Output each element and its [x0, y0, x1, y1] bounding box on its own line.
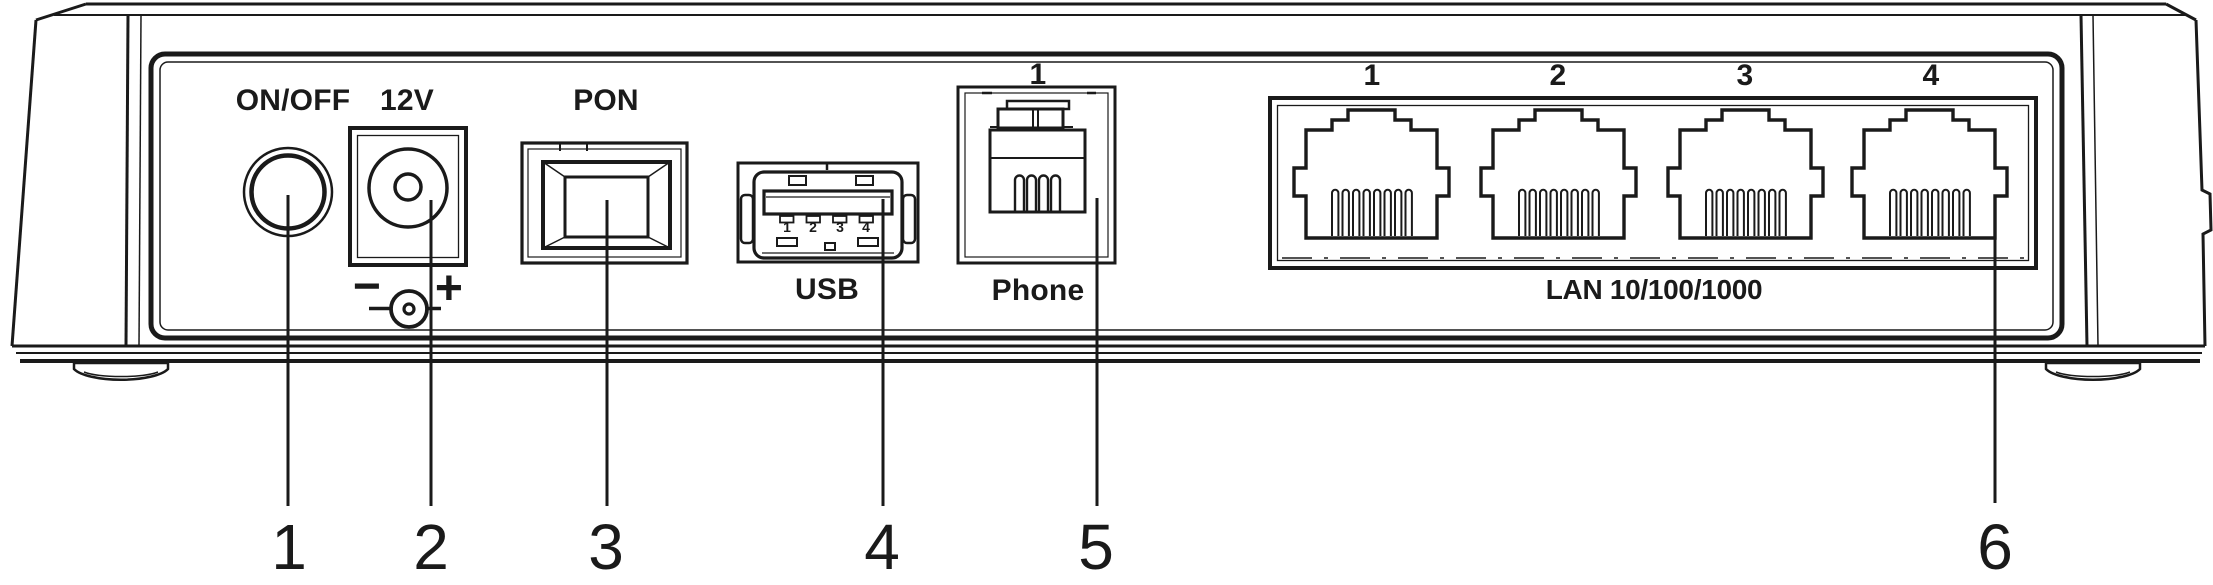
- lan-port-number-1: 1: [1364, 61, 1381, 91]
- lan-port-1-icon: [1294, 110, 1449, 238]
- usb-port-icon: [738, 163, 918, 262]
- lan-ports-group: [1270, 98, 2036, 268]
- callout-number-6: 6: [1977, 515, 2013, 579]
- pon-port-label: PON: [573, 86, 639, 116]
- lan-port-2-icon: [1481, 110, 1636, 238]
- usb-pin-number-3: 3: [836, 220, 844, 234]
- lan-ports-label: LAN 10/100/1000: [1546, 276, 1763, 304]
- power-jack-icon: [350, 128, 466, 265]
- usb-pin-number-2: 2: [809, 220, 817, 234]
- lan-port-number-3: 3: [1737, 61, 1754, 91]
- rear-panel-diagram: ON/OFF 12V − + PON USB 1 2 3 4 1 Phone 1…: [0, 0, 2213, 585]
- lan-port-number-2: 2: [1550, 61, 1567, 91]
- polarity-plus-sign: +: [435, 265, 463, 313]
- callout-number-5: 5: [1078, 515, 1114, 579]
- lan-port-4-icon: [1852, 110, 2007, 238]
- callout-number-3: 3: [588, 515, 624, 579]
- usb-port-label: USB: [795, 275, 859, 305]
- lan-port-number-4: 4: [1923, 61, 1940, 91]
- usb-pin-number-1: 1: [783, 220, 791, 234]
- phone-port-label: Phone: [992, 276, 1085, 306]
- callout-number-1: 1: [271, 515, 307, 579]
- phone-port-icon: [958, 87, 1115, 263]
- polarity-minus-sign: −: [353, 263, 381, 311]
- usb-pin-number-4: 4: [862, 220, 870, 234]
- lan-port-3-icon: [1668, 110, 1823, 238]
- chassis-outline: [12, 4, 2211, 380]
- callout-number-4: 4: [864, 515, 900, 579]
- power-button-label: ON/OFF: [236, 86, 351, 116]
- phone-port-number: 1: [1030, 60, 1047, 90]
- callout-number-2: 2: [413, 515, 449, 579]
- pon-port-icon: [522, 143, 687, 263]
- power-jack-label: 12V: [380, 86, 434, 116]
